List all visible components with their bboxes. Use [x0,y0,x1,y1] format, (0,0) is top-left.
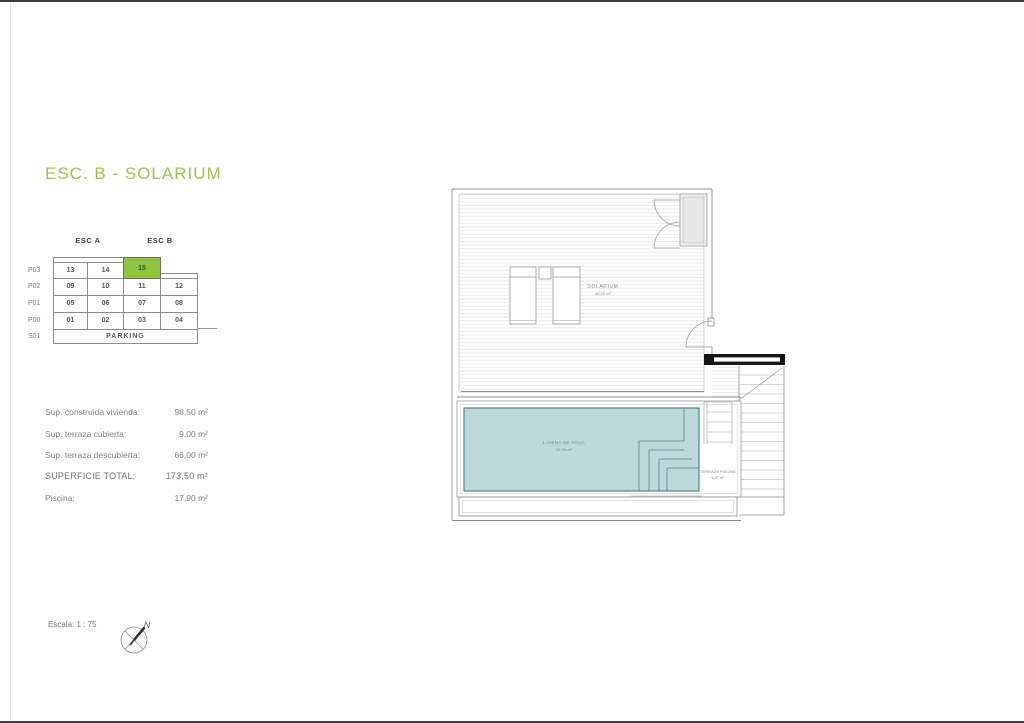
compass-north-label: N [144,620,151,630]
page-left-line [10,2,11,721]
unit-matrix-table: ESC A ESC B P03 13 14 15 P02 09 10 11 12… [28,236,228,352]
side-table [539,267,551,279]
unit-cell-12: 12 [160,278,198,296]
area-value: 9,00 m² [179,429,208,439]
plan-sheet: ESC. B - SOLARIUM ESC A ESC B P03 13 14 … [0,0,1024,723]
area-label: Sup. construida vivienda: [45,407,140,417]
area-label: Sup. terraza cubierta: [45,429,126,439]
unit-cell-04: 04 [160,312,198,330]
unit-cell-14: 14 [87,262,124,279]
unit-cell-02: 02 [87,312,124,330]
exterior-stairs [739,366,784,515]
pool [464,408,702,496]
unit-cell-05: 05 [53,295,88,313]
area-label: Sup. terraza descubierta: [45,450,140,460]
area-row-total: SUPERFICIE TOTAL: 173,50 m² [45,471,208,483]
area-label: Piscina: [45,493,75,503]
unit-cell-15-highlighted: 15 [123,257,161,279]
pool-area: 17,90 m² [556,447,572,452]
area-value: 98,50 m² [174,407,208,417]
unit-cell-13: 13 [53,262,88,279]
page-title: ESC. B - SOLARIUM [45,164,222,184]
compass-icon: N [116,618,156,658]
roof-strip-cell [53,257,124,263]
floor-plan-drawing: SOLARIUM 46,03 m² LAMINA DE AGUA 17,90 m… [451,187,787,527]
row-label-p03: P03 [28,262,50,279]
unit-cell-09: 09 [53,278,88,296]
pool-label: LAMINA DE AGUA [543,440,585,445]
parking-cell: PARKING [53,329,198,344]
area-value: 173,50 m² [166,471,208,481]
pool-water [464,408,699,491]
unit-cell-03: 03 [123,312,161,330]
row-label-s01: S01 [28,329,50,344]
scale-label: Escala: 1 : 75 [48,620,96,629]
area-row: Sup. construida vivienda: 98,50 m² [45,407,208,419]
pergola-beam [704,354,785,365]
area-row: Piscina: 17,90 m² [45,493,208,505]
solarium-room [459,194,704,392]
unit-cell-08: 08 [160,295,198,313]
esc-a-header: ESC A [53,236,123,246]
row-label-p02: P02 [28,278,50,296]
unit-cell-01: 01 [53,312,88,330]
area-summary: Sup. construida vivienda: 98,50 m² Sup. … [45,402,208,512]
solarium-area: 46,03 m² [595,291,611,296]
terrace-label: TERRAZA PISCINA [700,469,736,474]
page-top-border [0,0,1024,2]
unit-cell-p03-empty [160,273,198,279]
esc-b-header: ESC B [123,236,197,246]
area-value: 66,00 m² [174,450,208,460]
unit-cell-10: 10 [87,278,124,296]
row-label-p00: P00 [28,312,50,330]
terrace-area: 6,47 m² [712,476,726,480]
area-value: 17,90 m² [174,493,208,503]
row-label-p01: P01 [28,295,50,313]
area-row: Sup. terraza cubierta: 9,00 m² [45,429,208,441]
stair-bulkhead [680,194,707,246]
area-label: SUPERFICIE TOTAL: [45,471,135,481]
unit-cell-06: 06 [87,295,124,313]
area-row: Sup. terraza descubierta: 66,00 m² [45,450,208,462]
planter-strip [459,497,737,516]
terrace-deck [712,367,739,397]
unit-cell-07: 07 [123,295,161,313]
table-leader-line [197,328,217,329]
solarium-label: SOLARIUM [588,284,619,290]
unit-cell-11: 11 [123,278,161,296]
